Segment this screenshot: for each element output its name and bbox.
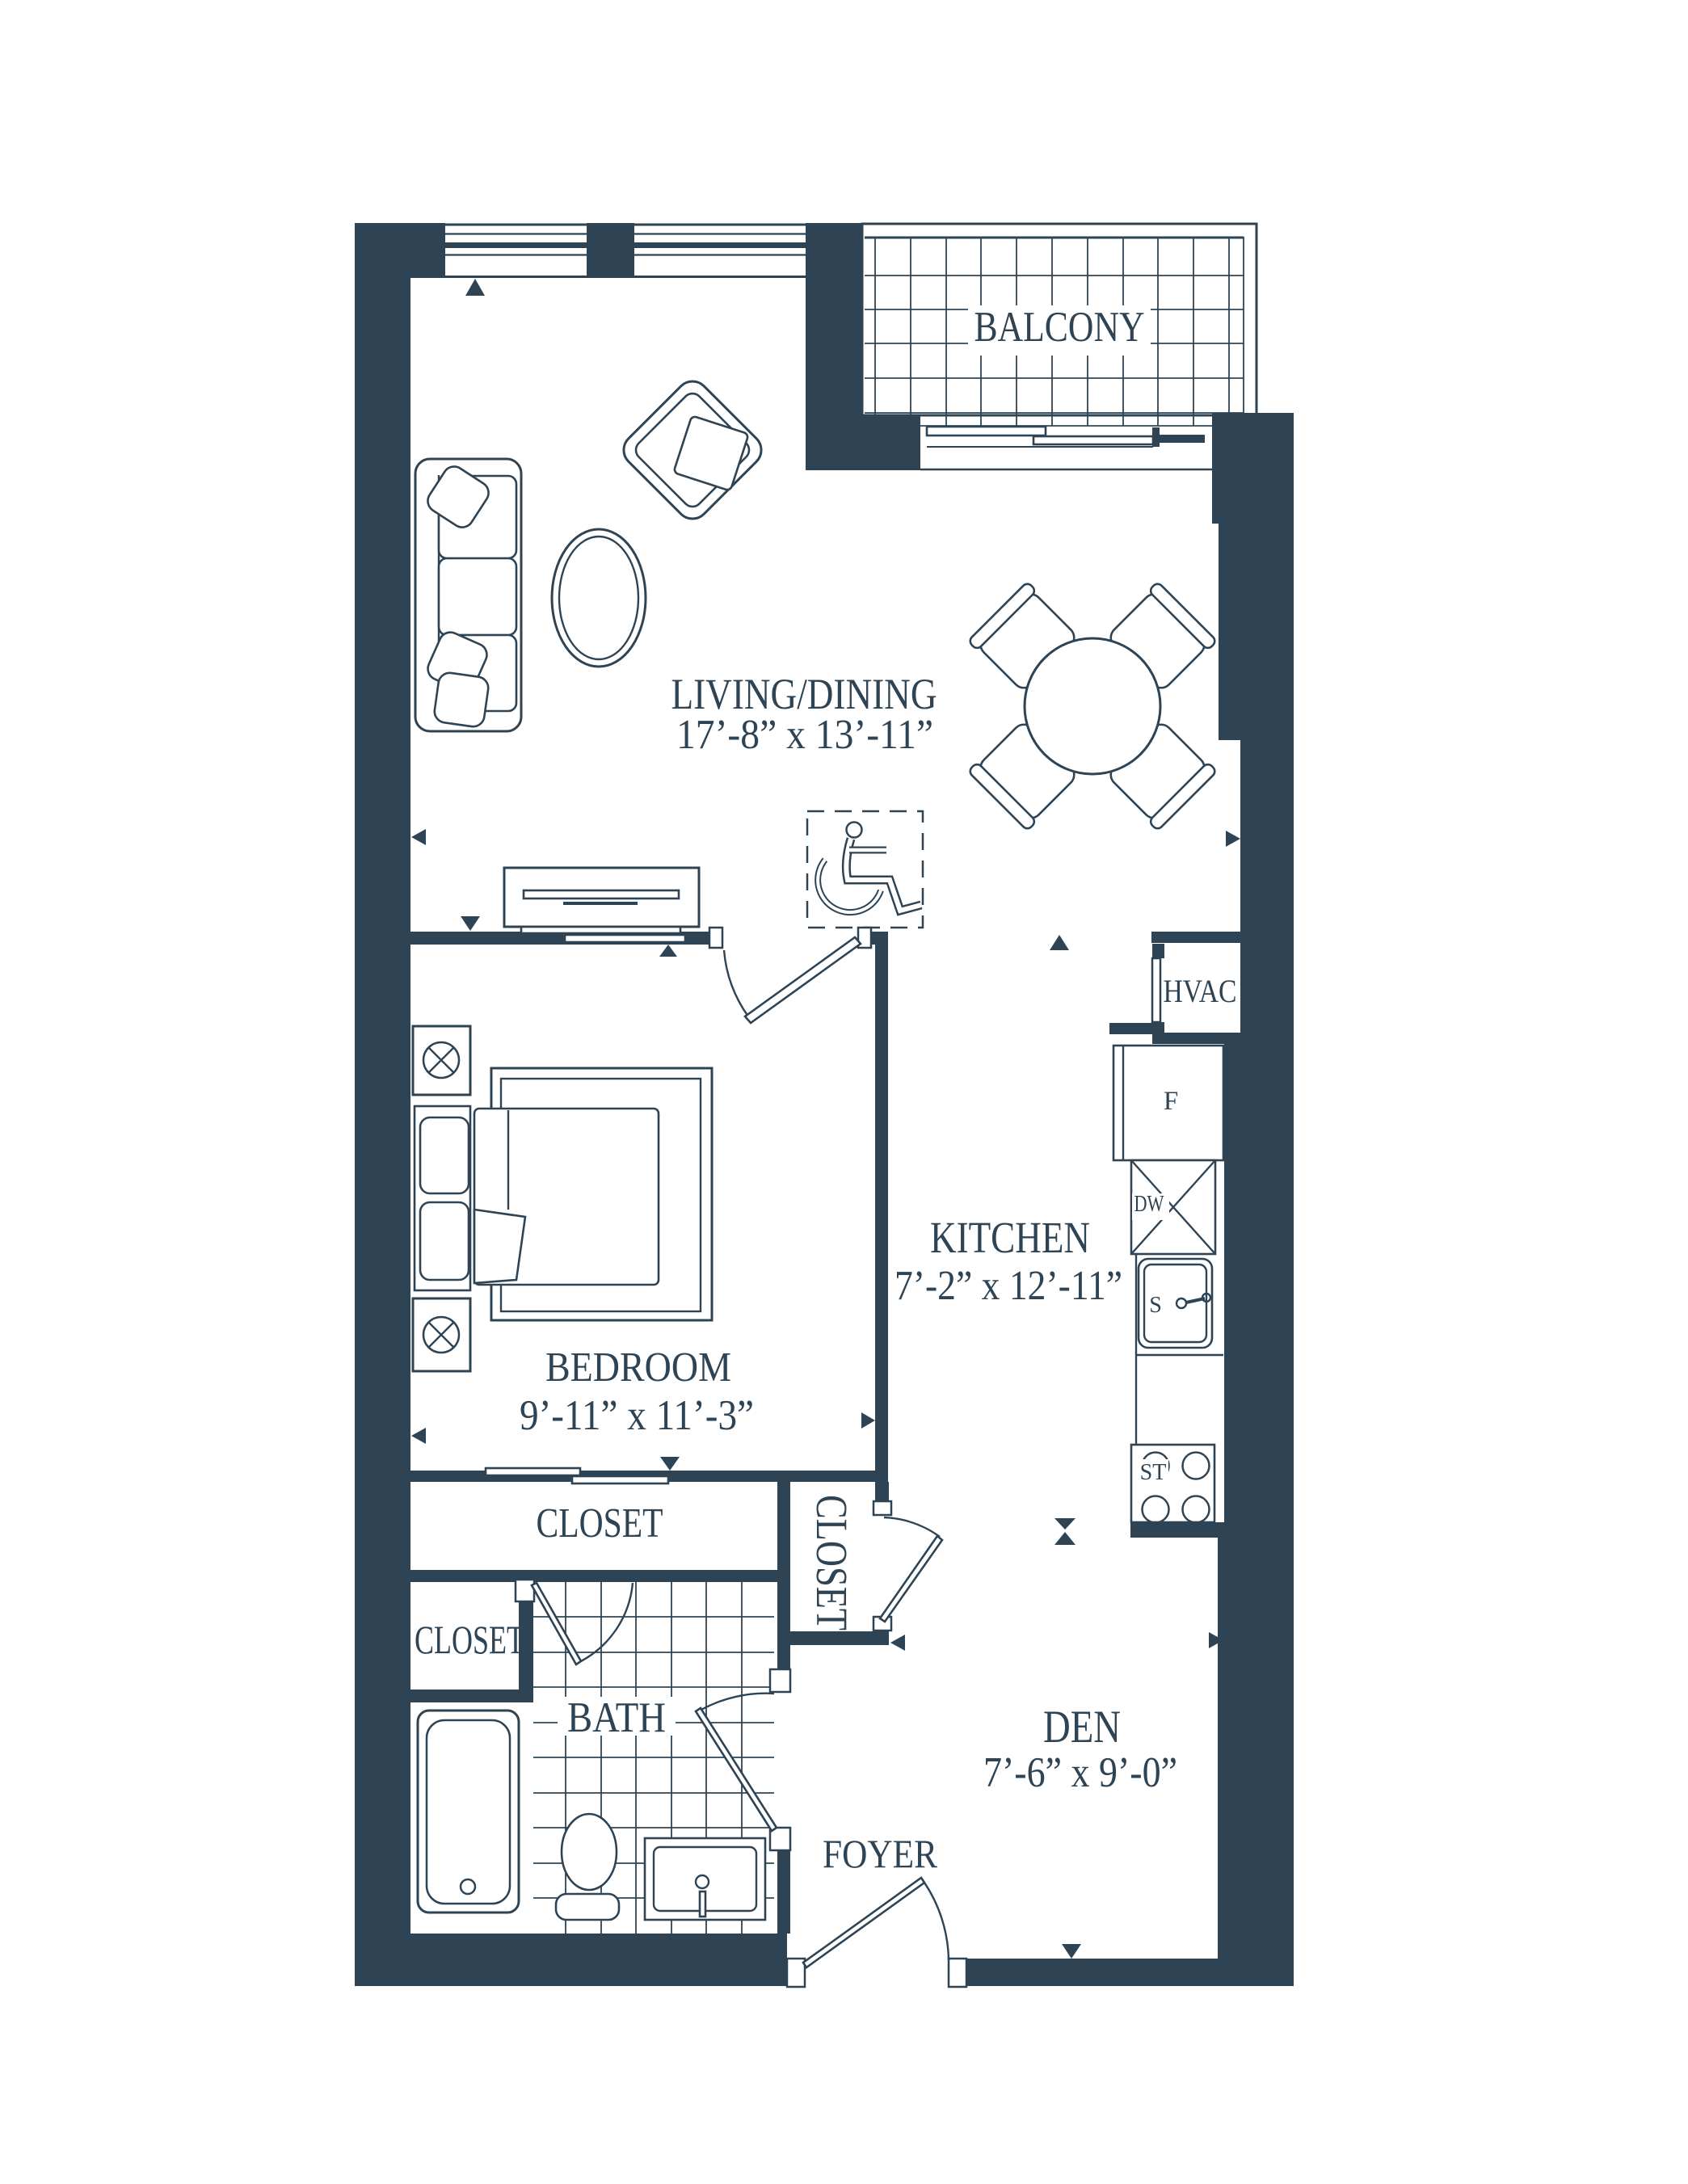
svg-text:7’-6” x 9’-0”: 7’-6” x 9’-0” bbox=[983, 1749, 1177, 1796]
svg-text:ST: ST bbox=[1140, 1460, 1167, 1485]
svg-text:DEN: DEN bbox=[1043, 1702, 1121, 1753]
svg-text:BATH: BATH bbox=[567, 1694, 666, 1741]
svg-text:CLOSET: CLOSET bbox=[415, 1617, 524, 1662]
svg-text:9’-11” x 11’-3”: 9’-11” x 11’-3” bbox=[520, 1392, 754, 1439]
svg-text:CLOSET: CLOSET bbox=[537, 1500, 663, 1546]
svg-text:BEDROOM: BEDROOM bbox=[545, 1344, 731, 1391]
svg-text:F: F bbox=[1164, 1087, 1178, 1116]
svg-text:LIVING/DINING: LIVING/DINING bbox=[671, 670, 937, 718]
svg-text:BALCONY: BALCONY bbox=[974, 304, 1145, 351]
svg-text:S: S bbox=[1149, 1293, 1162, 1318]
svg-text:HVAC: HVAC bbox=[1164, 973, 1237, 1009]
svg-text:17’-8” x 13’-11”: 17’-8” x 13’-11” bbox=[676, 712, 933, 758]
svg-text:CLOSET: CLOSET bbox=[807, 1495, 857, 1631]
svg-text:DW: DW bbox=[1134, 1192, 1164, 1217]
svg-text:7’-2” x 12’-11”: 7’-2” x 12’-11” bbox=[895, 1263, 1122, 1309]
svg-text:KITCHEN: KITCHEN bbox=[930, 1213, 1090, 1262]
svg-text:FOYER: FOYER bbox=[823, 1831, 938, 1876]
